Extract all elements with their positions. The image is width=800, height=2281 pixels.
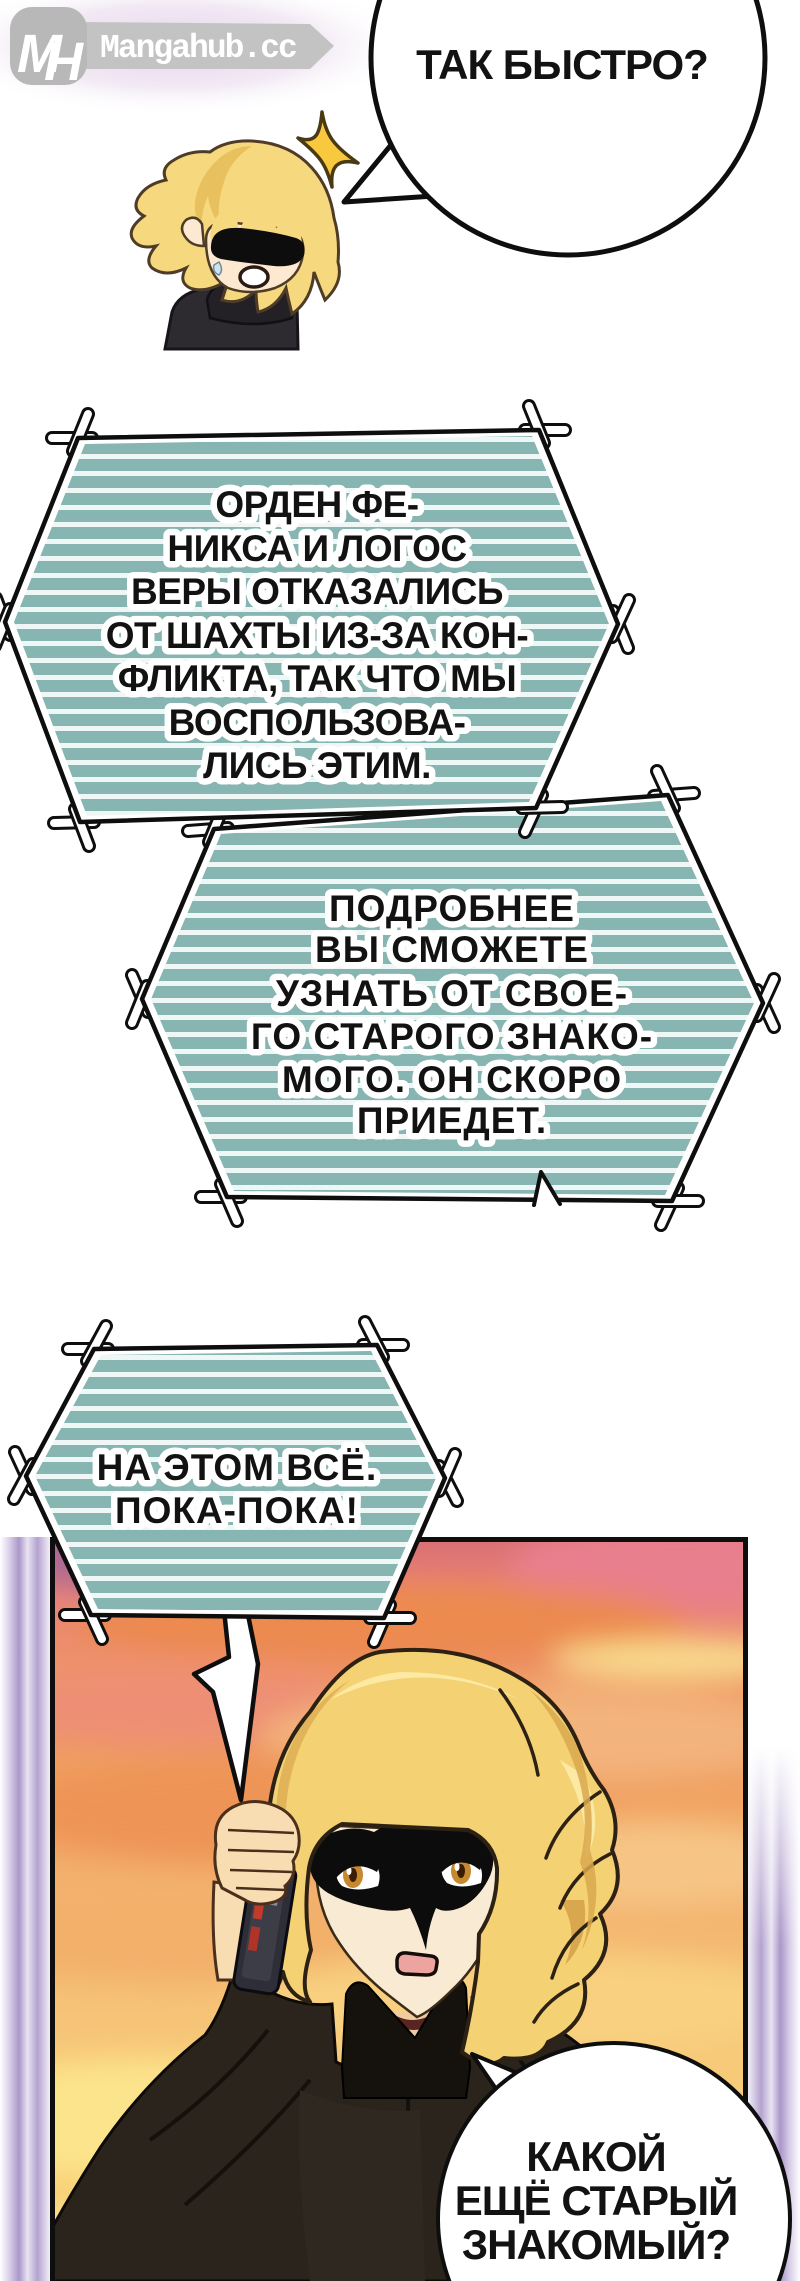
svg-text:НИКСА И ЛОГОС: НИКСА И ЛОГОС bbox=[167, 528, 466, 569]
svg-text:ВЫ СМОЖЕТЕ: ВЫ СМОЖЕТЕ bbox=[315, 929, 589, 970]
svg-text:ВЕРЫ ОТКАЗАЛИСЬ: ВЕРЫ ОТКАЗАЛИСЬ bbox=[131, 571, 503, 612]
svg-text:Mangahub.cc: Mangahub.cc bbox=[100, 30, 296, 67]
svg-text:H: H bbox=[44, 32, 84, 92]
svg-text:УЗНАТЬ ОТ СВОЕ-: УЗНАТЬ ОТ СВОЕ- bbox=[276, 973, 628, 1014]
svg-text:ЕЩЁ СТАРЫЙ: ЕЩЁ СТАРЫЙ bbox=[455, 2176, 738, 2224]
svg-text:ПОКА-ПОКА!: ПОКА-ПОКА! bbox=[115, 1490, 359, 1531]
svg-text:ПОДРОБНЕЕ: ПОДРОБНЕЕ bbox=[329, 888, 575, 929]
svg-text:ОРДЕН ФЕ-: ОРДЕН ФЕ- bbox=[215, 484, 418, 525]
svg-text:КАКОЙ: КАКОЙ bbox=[526, 2132, 665, 2180]
svg-text:МОГО. ОН СКОРО: МОГО. ОН СКОРО bbox=[282, 1059, 622, 1100]
svg-text:ТАК БЫСТРО?: ТАК БЫСТРО? bbox=[416, 41, 708, 88]
svg-text:ЗНАКОМЫЙ?: ЗНАКОМЫЙ? bbox=[462, 2220, 730, 2268]
svg-text:ВОСПОЛЬЗОВА-: ВОСПОЛЬЗОВА- bbox=[169, 702, 466, 743]
svg-text:ФЛИКТА, ТАК ЧТО МЫ: ФЛИКТА, ТАК ЧТО МЫ bbox=[118, 658, 516, 699]
svg-text:ПРИЕДЕТ.: ПРИЕДЕТ. bbox=[357, 1100, 547, 1141]
svg-text:ЛИСЬ ЭТИМ.: ЛИСЬ ЭТИМ. bbox=[203, 745, 431, 786]
svg-text:ГО СТАРОГО ЗНАКО-: ГО СТАРОГО ЗНАКО- bbox=[251, 1016, 653, 1057]
svg-text:ОТ ШАХТЫ ИЗ-ЗА КОН-: ОТ ШАХТЫ ИЗ-ЗА КОН- bbox=[106, 615, 529, 656]
svg-text:НА ЭТОМ ВСЁ.: НА ЭТОМ ВСЁ. bbox=[97, 1447, 378, 1488]
